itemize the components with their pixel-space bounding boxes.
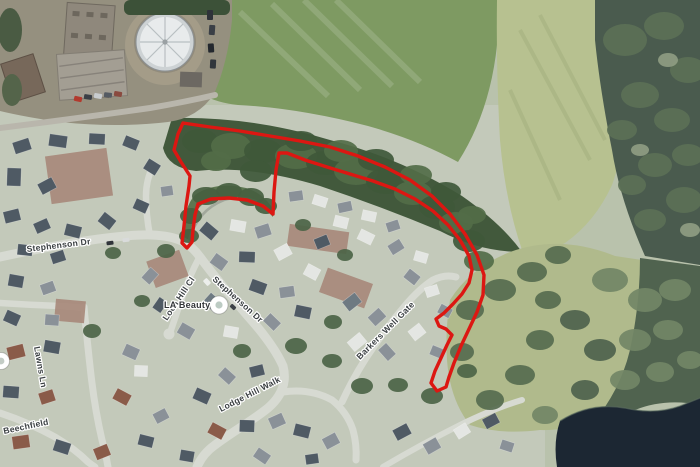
map-canvas[interactable]: Stephenson Dr Stephenson Dr Loch Hill Cl… — [0, 0, 700, 467]
satellite-map: Stephenson Dr Stephenson Dr Loch Hill Cl… — [0, 0, 700, 467]
poi-label-la-beauty: LA Beauty — [164, 300, 210, 310]
poi-marker-la-beauty[interactable] — [210, 296, 228, 314]
industrial-estate — [0, 0, 232, 125]
